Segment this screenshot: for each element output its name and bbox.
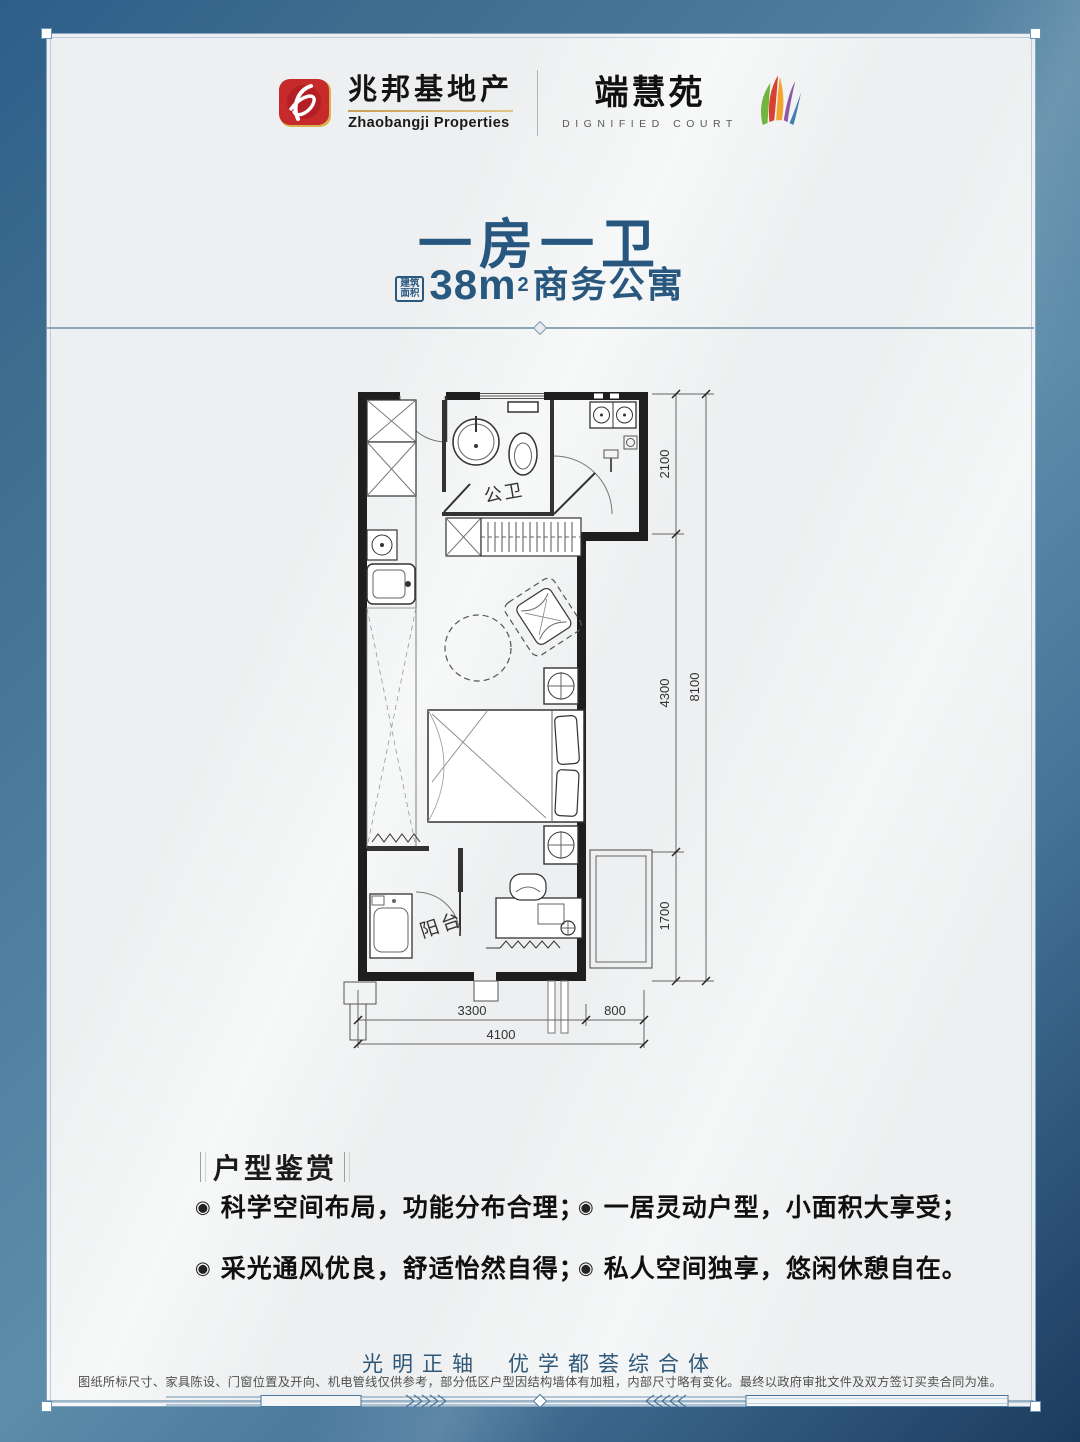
logo-divider [537,70,538,136]
project-name-block: 端慧苑 DIGNIFIED COURT [562,76,738,130]
gold-divider [348,110,513,112]
frame-corner-top-right [1030,28,1041,39]
dim-v-total: 8100 [687,673,702,702]
kitchenette-cabinets [367,400,416,848]
area-type: 商务公寓 [533,267,685,303]
desk [486,874,582,948]
features-heading-row: 户型鉴赏 [193,1147,357,1187]
feature-item: ◉一居灵动户型，小面积大享受； [578,1188,968,1224]
project-name-cn: 端慧苑 [562,76,738,110]
area-value: 38m [429,264,516,306]
heading-bar-icon [200,1152,206,1182]
poster-page: 兆邦基地产 Zhaobangji Properties 端慧苑 DIGNIFIE… [0,0,1080,1442]
feature-item: ◉私人空间独享，悠闲休憩自在。 [578,1249,968,1285]
appliance-cabinet [544,668,578,704]
unit-subtitle: 建筑 面积 38m2 商务公寓 [0,264,1080,306]
floor-plan: 公卫 [338,380,758,1060]
frame-corner-top-left [41,28,52,39]
feature-item: ◉科学空间布局，功能分布合理； [195,1188,585,1224]
area-tag-bottom: 面积 [400,288,419,299]
bed [428,710,584,822]
feature-item: ◉采光通风优良，舒适怡然自得； [195,1249,585,1285]
balcony-label: 阳台 [417,908,466,943]
bullet-icon: ◉ [195,1258,212,1278]
separator-line [46,327,1034,329]
area-tag-top: 建筑 [400,278,419,289]
heading-bar-icon [344,1152,350,1182]
developer-name-en: Zhaobangji Properties [348,115,513,131]
developer-name-block: 兆邦基地产 Zhaobangji Properties [348,75,513,130]
ornament-band [46,1392,1034,1410]
bathroom-label: 公卫 [482,480,525,507]
developer-name-cn: 兆邦基地产 [348,75,513,105]
round-table [445,615,511,681]
dim-h2: 800 [604,1003,626,1018]
dim-h1: 3300 [458,1003,487,1018]
balcony [367,834,463,958]
dim-v3: 1700 [657,902,672,931]
project-name-en: DIGNIFIED COURT [562,118,738,130]
dim-v2: 4300 [657,679,672,708]
developer-logo-icon [278,78,332,128]
feature-text: 私人空间独享，悠闲休憩自在。 [604,1255,968,1283]
project-logo-fan-icon [756,72,802,134]
disclaimer-text: 图纸所标尺寸、家具陈设、门窗位置及开向、机电管线仅供参考，部分低区户型因结构墙体… [0,1372,1080,1390]
band-diamond-icon [534,1395,547,1408]
area-tag: 建筑 面积 [395,276,424,303]
area-superscript: 2 [517,274,528,297]
bullet-icon: ◉ [578,1197,595,1217]
features-heading: 户型鉴赏 [213,1147,337,1187]
dim-v1: 2100 [657,450,672,479]
header-logos: 兆邦基地产 Zhaobangji Properties 端慧苑 DIGNIFIE… [0,70,1080,136]
feature-text: 采光通风优良，舒适怡然自得； [221,1255,585,1283]
feature-text: 一居灵动户型，小面积大享受； [604,1194,968,1222]
bullet-icon: ◉ [578,1258,595,1278]
wardrobe [446,518,581,556]
kitchen [554,402,637,514]
armchair [502,575,584,659]
feature-text: 科学空间布局，功能分布合理； [221,1194,585,1222]
bullet-icon: ◉ [195,1197,212,1217]
dim-h-total: 4100 [487,1027,516,1042]
washer-unit [544,826,578,864]
